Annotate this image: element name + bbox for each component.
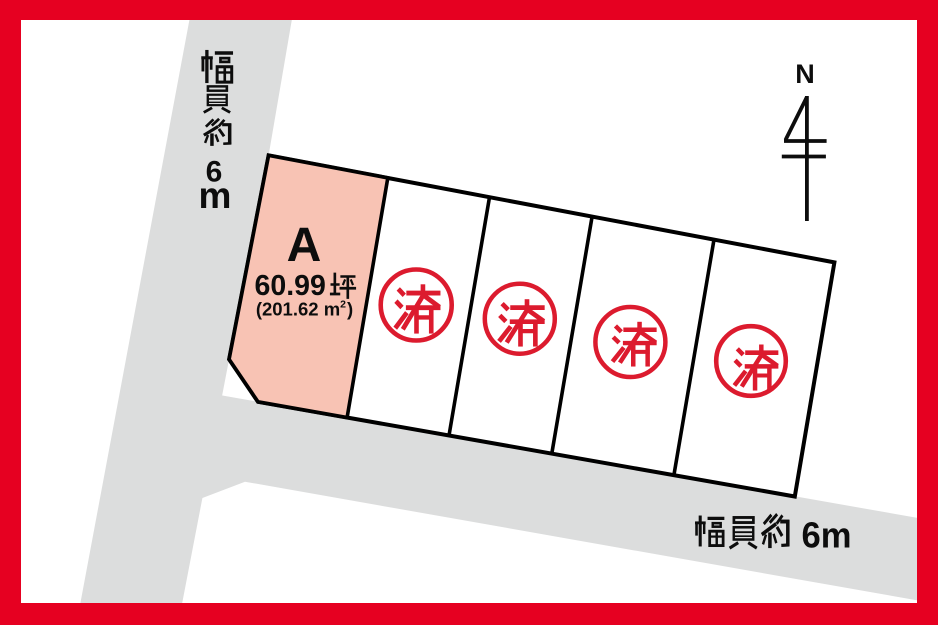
svg-text:A: A <box>287 219 322 272</box>
svg-text:60.99: 60.99 <box>255 270 326 302</box>
svg-text:N: N <box>795 59 815 89</box>
svg-text:6m: 6m <box>802 515 852 556</box>
svg-text:(201.62 m2): (201.62 m2) <box>256 299 353 320</box>
svg-text:m: m <box>199 175 232 216</box>
